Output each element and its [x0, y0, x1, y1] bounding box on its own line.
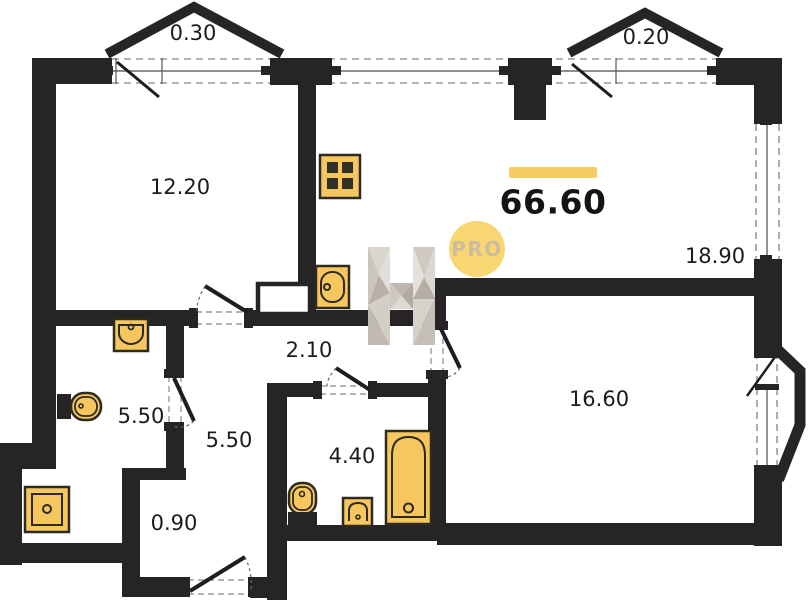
room-label-living-kitchen: 18.90 [685, 244, 745, 268]
room-label-balcony-right: 0.20 [623, 25, 670, 49]
kitchen-niche [258, 284, 310, 314]
small-sink-icon [343, 498, 372, 526]
total-area-label: 66.60 [500, 183, 607, 222]
room-label-bathroom: 4.40 [329, 444, 376, 468]
h-logo-icon [368, 247, 435, 345]
pro-badge: PRO [449, 221, 505, 277]
pro-badge-label: PRO [451, 237, 503, 261]
door-bathroom-main [313, 368, 377, 399]
door-bathroom-left [164, 369, 194, 431]
room-label-corridor: 2.10 [286, 338, 333, 362]
room-label-room-top-left: 12.20 [150, 175, 210, 199]
room-label-bathroom-left: 5.50 [118, 404, 165, 428]
wall-sink-icon [114, 319, 148, 351]
toilet-main-icon [288, 483, 317, 525]
bay-window-outer-wall [756, 352, 800, 476]
balcony-door-right [572, 58, 616, 97]
bay-casement-leaf [747, 357, 775, 396]
kitchen-sink-icon [316, 266, 349, 308]
room-label-hallway: 5.50 [206, 428, 253, 452]
room-label-entry-nook: 0.90 [151, 511, 198, 535]
shower-tray-icon [25, 487, 69, 532]
door-entry [181, 557, 257, 597]
room-label-balcony-left: 0.30 [170, 21, 217, 45]
total-area-accent-bar [509, 167, 597, 178]
stove-icon [320, 155, 360, 198]
door-living [189, 286, 253, 328]
toilet-left-icon [57, 393, 101, 420]
floor-plan-canvas [0, 0, 808, 600]
room-label-bedroom: 16.60 [569, 387, 629, 411]
balcony-door-left [116, 58, 162, 97]
floor-plan: 0.30 0.20 12.20 18.90 2.10 5.50 5.50 4.4… [0, 0, 808, 600]
bathtub-icon [386, 431, 431, 524]
